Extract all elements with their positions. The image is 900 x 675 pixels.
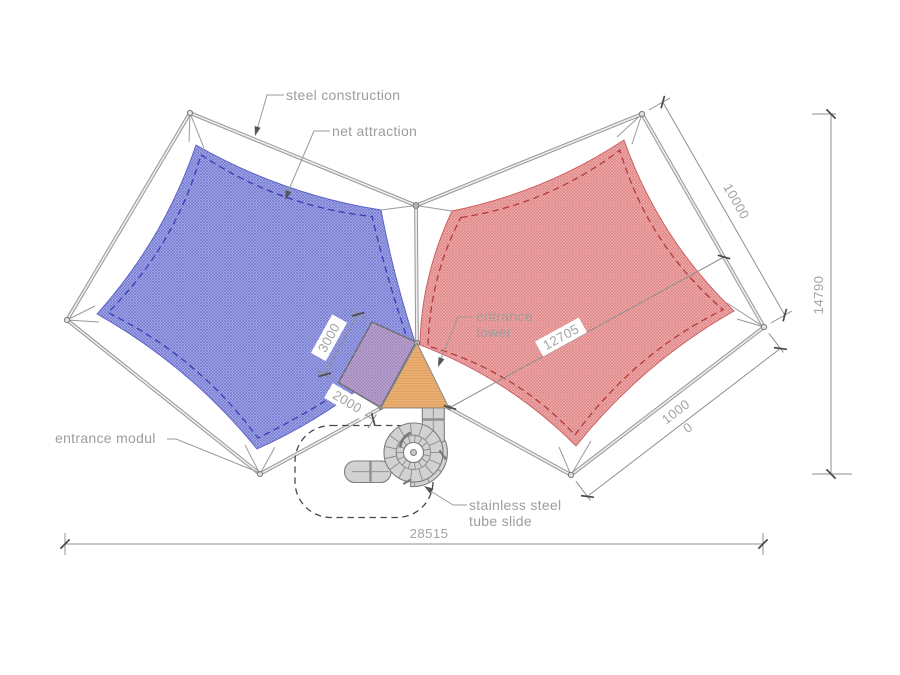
svg-text:14790: 14790 <box>811 276 826 315</box>
svg-text:28515: 28515 <box>410 526 449 541</box>
svg-text:steel construction: steel construction <box>286 87 400 103</box>
svg-text:tower: tower <box>476 324 512 340</box>
svg-text:stainless steel: stainless steel <box>469 497 561 513</box>
svg-text:tube slide: tube slide <box>469 513 532 529</box>
svg-text:entrance: entrance <box>476 308 533 324</box>
svg-text:entrance modul: entrance modul <box>55 430 156 446</box>
svg-text:net attraction: net attraction <box>332 123 417 139</box>
